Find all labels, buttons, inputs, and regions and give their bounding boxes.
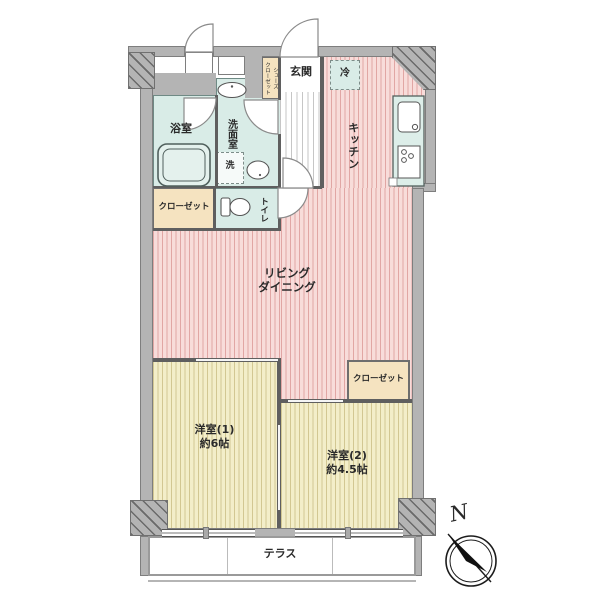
label-shoes-closet-line2: クローゼット xyxy=(263,59,271,97)
label-washer: 洗 xyxy=(216,161,244,172)
label-room2-size: 約4.5帖 xyxy=(285,463,409,477)
toilet-door-arc xyxy=(278,188,308,218)
bathtub-icon xyxy=(158,144,210,186)
label-shoes-closet: シューズ クローゼット xyxy=(263,59,279,97)
washbasin-icon xyxy=(247,161,269,179)
label-living-line2: ダイニング xyxy=(237,280,337,294)
label-room2: 洋室(2) 約4.5帖 xyxy=(285,449,409,477)
label-living-line1: リビング xyxy=(237,266,337,280)
label-closet-hall: クローゼット xyxy=(153,202,215,213)
label-entrance: 玄関 xyxy=(280,65,322,79)
label-kitchen: キッチン xyxy=(346,110,360,182)
label-room1-name: 洋室(1) xyxy=(152,423,277,437)
floorplan-canvas: 玄関 冷 キッチン 浴室 洗面室 洗 シューズ クローゼット クローゼット トイ… xyxy=(0,0,600,600)
meter-box-door-arc xyxy=(185,24,213,52)
label-refrigerator: 冷 xyxy=(330,68,360,81)
label-room1-size: 約6帖 xyxy=(152,437,277,451)
label-washroom: 洗面室 xyxy=(224,108,237,160)
kitchen-counter-icon xyxy=(389,96,424,186)
label-room1: 洋室(1) 約6帖 xyxy=(152,423,277,451)
vanity-sink-icon xyxy=(218,83,246,98)
toilet-icon xyxy=(221,198,250,216)
label-closet-room2: クローゼット xyxy=(347,374,410,385)
compass-icon xyxy=(446,534,496,586)
label-terrace: テラス xyxy=(240,547,320,561)
compass-needle-black xyxy=(448,534,487,572)
label-toilet: トイレ xyxy=(258,191,269,229)
label-shoes-closet-line1: シューズ xyxy=(271,59,279,97)
fixtures-overlay xyxy=(0,0,600,600)
living-door-arc xyxy=(283,158,313,188)
label-room2-name: 洋室(2) xyxy=(285,449,409,463)
washroom-door-arc xyxy=(244,100,278,134)
label-living-dining: リビング ダイニング xyxy=(237,266,337,295)
label-bathroom: 浴室 xyxy=(150,122,212,136)
entrance-door-arc xyxy=(280,19,318,57)
